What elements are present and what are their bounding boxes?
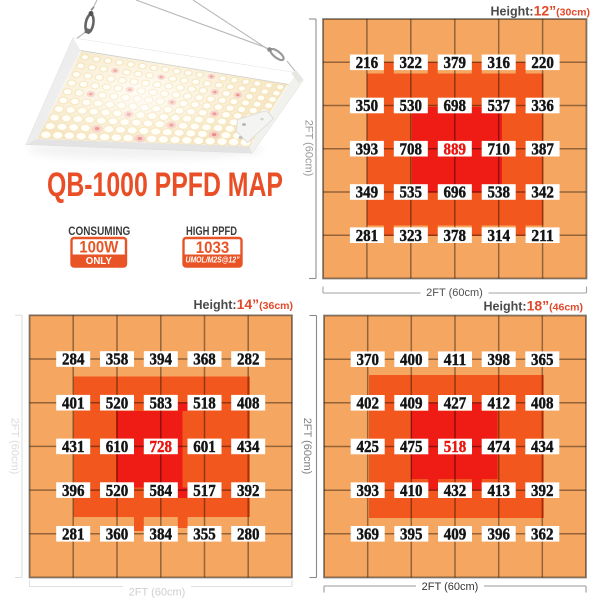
svg-text:384: 384 bbox=[150, 525, 173, 544]
svg-text:316: 316 bbox=[487, 53, 510, 72]
svg-text:1033: 1033 bbox=[196, 238, 230, 257]
svg-text:401: 401 bbox=[62, 393, 85, 412]
svg-text:431: 431 bbox=[62, 437, 85, 456]
svg-text:349: 349 bbox=[356, 183, 379, 202]
svg-text:474: 474 bbox=[487, 437, 510, 456]
svg-text:282: 282 bbox=[237, 350, 260, 369]
svg-text:410: 410 bbox=[400, 481, 423, 500]
svg-text:100W: 100W bbox=[79, 239, 118, 257]
svg-text:411: 411 bbox=[444, 350, 467, 369]
svg-text:413: 413 bbox=[487, 481, 510, 500]
svg-text:409: 409 bbox=[400, 394, 423, 413]
svg-text:Height:18”(46cm): Height:18”(46cm) bbox=[484, 298, 584, 314]
svg-text:378: 378 bbox=[444, 226, 467, 245]
svg-text:358: 358 bbox=[106, 350, 129, 369]
svg-text:Height:12”(30cm): Height:12”(30cm) bbox=[491, 3, 591, 19]
svg-text:434: 434 bbox=[237, 437, 260, 456]
svg-text:350: 350 bbox=[356, 96, 379, 115]
svg-text:323: 323 bbox=[400, 226, 423, 245]
svg-text:537: 537 bbox=[487, 96, 510, 115]
svg-text:322: 322 bbox=[400, 53, 423, 72]
svg-text:280: 280 bbox=[237, 525, 260, 544]
svg-text:402: 402 bbox=[356, 394, 379, 413]
svg-text:211: 211 bbox=[531, 226, 554, 245]
svg-text:216: 216 bbox=[356, 53, 379, 72]
svg-text:708: 708 bbox=[400, 139, 423, 158]
svg-text:396: 396 bbox=[487, 525, 510, 544]
svg-text:409: 409 bbox=[444, 525, 467, 544]
svg-text:427: 427 bbox=[444, 394, 467, 413]
svg-text:Height:14”(36cm): Height:14”(36cm) bbox=[194, 296, 294, 312]
svg-text:ONLY: ONLY bbox=[86, 255, 112, 267]
svg-text:314: 314 bbox=[487, 226, 510, 245]
svg-text:355: 355 bbox=[193, 525, 216, 544]
svg-text:2FT (60cm): 2FT (60cm) bbox=[426, 287, 483, 299]
svg-text:394: 394 bbox=[150, 350, 173, 369]
svg-text:284: 284 bbox=[62, 350, 85, 369]
svg-text:336: 336 bbox=[531, 96, 554, 115]
svg-text:365: 365 bbox=[531, 350, 554, 369]
svg-text:517: 517 bbox=[193, 481, 216, 500]
svg-text:395: 395 bbox=[400, 525, 423, 544]
svg-text:281: 281 bbox=[62, 525, 85, 544]
svg-text:396: 396 bbox=[62, 481, 85, 500]
svg-text:434: 434 bbox=[531, 437, 554, 456]
svg-text:601: 601 bbox=[193, 437, 216, 456]
svg-text:518: 518 bbox=[444, 437, 467, 456]
svg-text:362: 362 bbox=[531, 525, 554, 544]
svg-text:425: 425 bbox=[356, 437, 379, 456]
svg-text:220: 220 bbox=[531, 53, 554, 72]
svg-text:HIGH PPFD: HIGH PPFD bbox=[186, 226, 237, 238]
svg-text:520: 520 bbox=[106, 481, 129, 500]
svg-text:QB-1000 PPFD MAP: QB-1000 PPFD MAP bbox=[47, 166, 283, 204]
svg-text:400: 400 bbox=[400, 350, 423, 369]
svg-text:392: 392 bbox=[531, 481, 554, 500]
svg-text:379: 379 bbox=[444, 53, 467, 72]
svg-text:2FT (60cm): 2FT (60cm) bbox=[9, 418, 21, 475]
svg-text:392: 392 bbox=[237, 481, 260, 500]
svg-text:CONSUMING: CONSUMING bbox=[68, 226, 130, 238]
svg-text:696: 696 bbox=[444, 183, 467, 202]
svg-text:UMOL/M2S@12”: UMOL/M2S@12” bbox=[186, 256, 240, 265]
svg-text:432: 432 bbox=[444, 481, 467, 500]
svg-text:535: 535 bbox=[400, 183, 423, 202]
svg-text:2FT (60cm): 2FT (60cm) bbox=[422, 581, 479, 593]
svg-text:889: 889 bbox=[444, 139, 467, 158]
svg-text:393: 393 bbox=[356, 139, 379, 158]
svg-text:370: 370 bbox=[356, 350, 379, 369]
svg-text:710: 710 bbox=[487, 139, 510, 158]
svg-text:583: 583 bbox=[150, 393, 173, 412]
svg-text:520: 520 bbox=[106, 393, 129, 412]
svg-text:2FT (60cm): 2FT (60cm) bbox=[303, 120, 315, 177]
svg-text:342: 342 bbox=[531, 183, 554, 202]
svg-text:412: 412 bbox=[487, 394, 510, 413]
svg-text:369: 369 bbox=[356, 525, 379, 544]
svg-text:360: 360 bbox=[106, 525, 129, 544]
svg-text:398: 398 bbox=[487, 350, 510, 369]
svg-text:728: 728 bbox=[150, 437, 173, 456]
svg-text:408: 408 bbox=[237, 393, 260, 412]
svg-text:387: 387 bbox=[531, 139, 554, 158]
svg-text:530: 530 bbox=[400, 96, 423, 115]
svg-text:698: 698 bbox=[444, 96, 467, 115]
svg-text:393: 393 bbox=[356, 481, 379, 500]
svg-text:2FT (60cm): 2FT (60cm) bbox=[129, 587, 186, 599]
svg-text:368: 368 bbox=[193, 350, 216, 369]
svg-text:475: 475 bbox=[400, 437, 423, 456]
svg-text:584: 584 bbox=[150, 481, 173, 500]
svg-text:281: 281 bbox=[356, 226, 379, 245]
svg-text:538: 538 bbox=[487, 183, 510, 202]
svg-text:610: 610 bbox=[106, 437, 129, 456]
svg-text:518: 518 bbox=[193, 393, 216, 412]
svg-text:2FT (60cm): 2FT (60cm) bbox=[301, 418, 313, 475]
svg-text:408: 408 bbox=[531, 394, 554, 413]
